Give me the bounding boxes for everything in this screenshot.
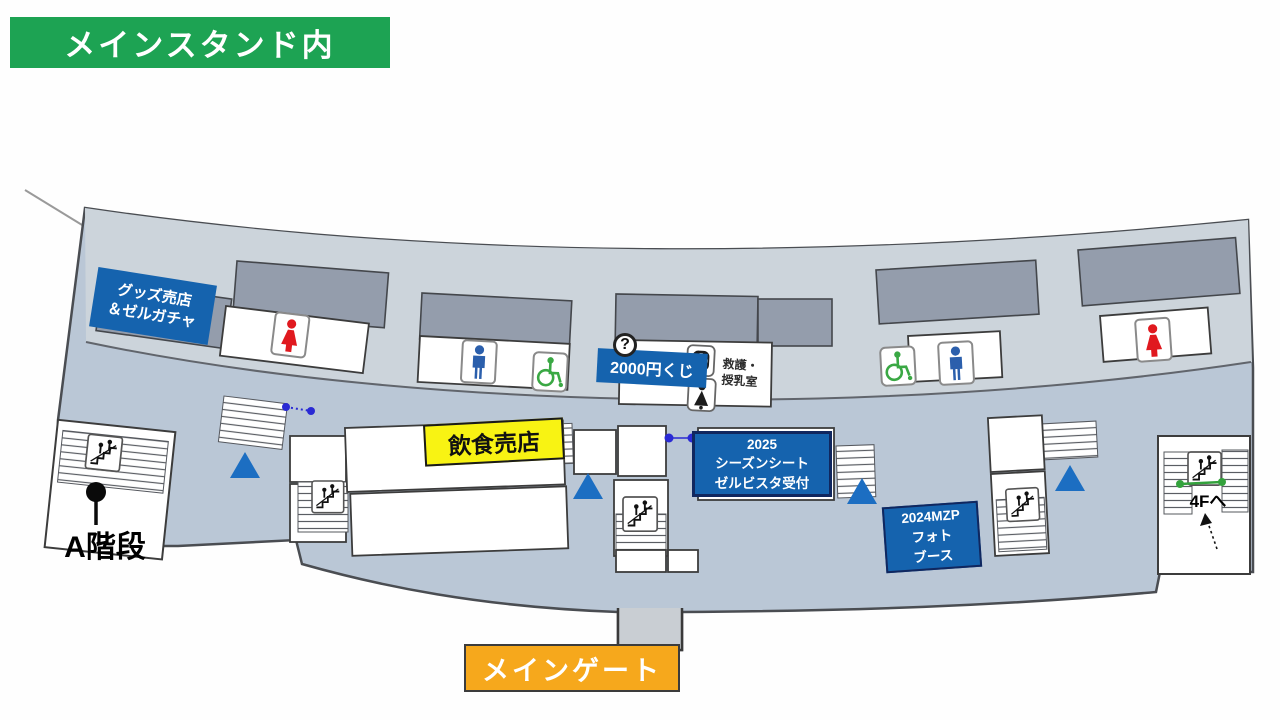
season-seat-reception-label: 2025 シーズンシート ゼルビスタ受付 (692, 431, 832, 497)
male-restroom-icon (461, 340, 497, 384)
stairs-a-label: A階段 (40, 524, 170, 564)
area-title-banner: メインスタンド内 (10, 17, 390, 68)
info-icon: ? (613, 333, 637, 357)
wheelchair-icon (532, 352, 568, 392)
stairs-icon (312, 481, 344, 513)
female-restroom-icon (1135, 318, 1172, 362)
stairs-icon (623, 497, 657, 531)
wall-line (25, 190, 87, 228)
lottery-label: 2000円くじ (596, 348, 708, 388)
male-restroom-icon (938, 341, 974, 385)
photo-booth-label: 2024MZP フォト ブース (882, 501, 982, 574)
stairs-icon (1006, 488, 1040, 522)
food-stall-label: 飲食売店 (423, 417, 565, 466)
floor-map-page: メインスタンド内 グッズ売店 ＆ゼルガチャ 2000円くじ 飲食売店 2025 … (0, 0, 1280, 720)
female-restroom-icon (271, 312, 310, 358)
wheelchair-icon (880, 346, 916, 386)
left-center-tower (290, 436, 348, 542)
stairs-icon (85, 434, 123, 472)
stairs-icon (1188, 452, 1221, 485)
first-aid-nursing-label: 救護・ 授乳室 (711, 353, 769, 393)
main-gate-banner: メインゲート (464, 644, 680, 692)
to-4f-label: 4Fへ (1178, 487, 1238, 511)
right-tower (988, 415, 1049, 556)
